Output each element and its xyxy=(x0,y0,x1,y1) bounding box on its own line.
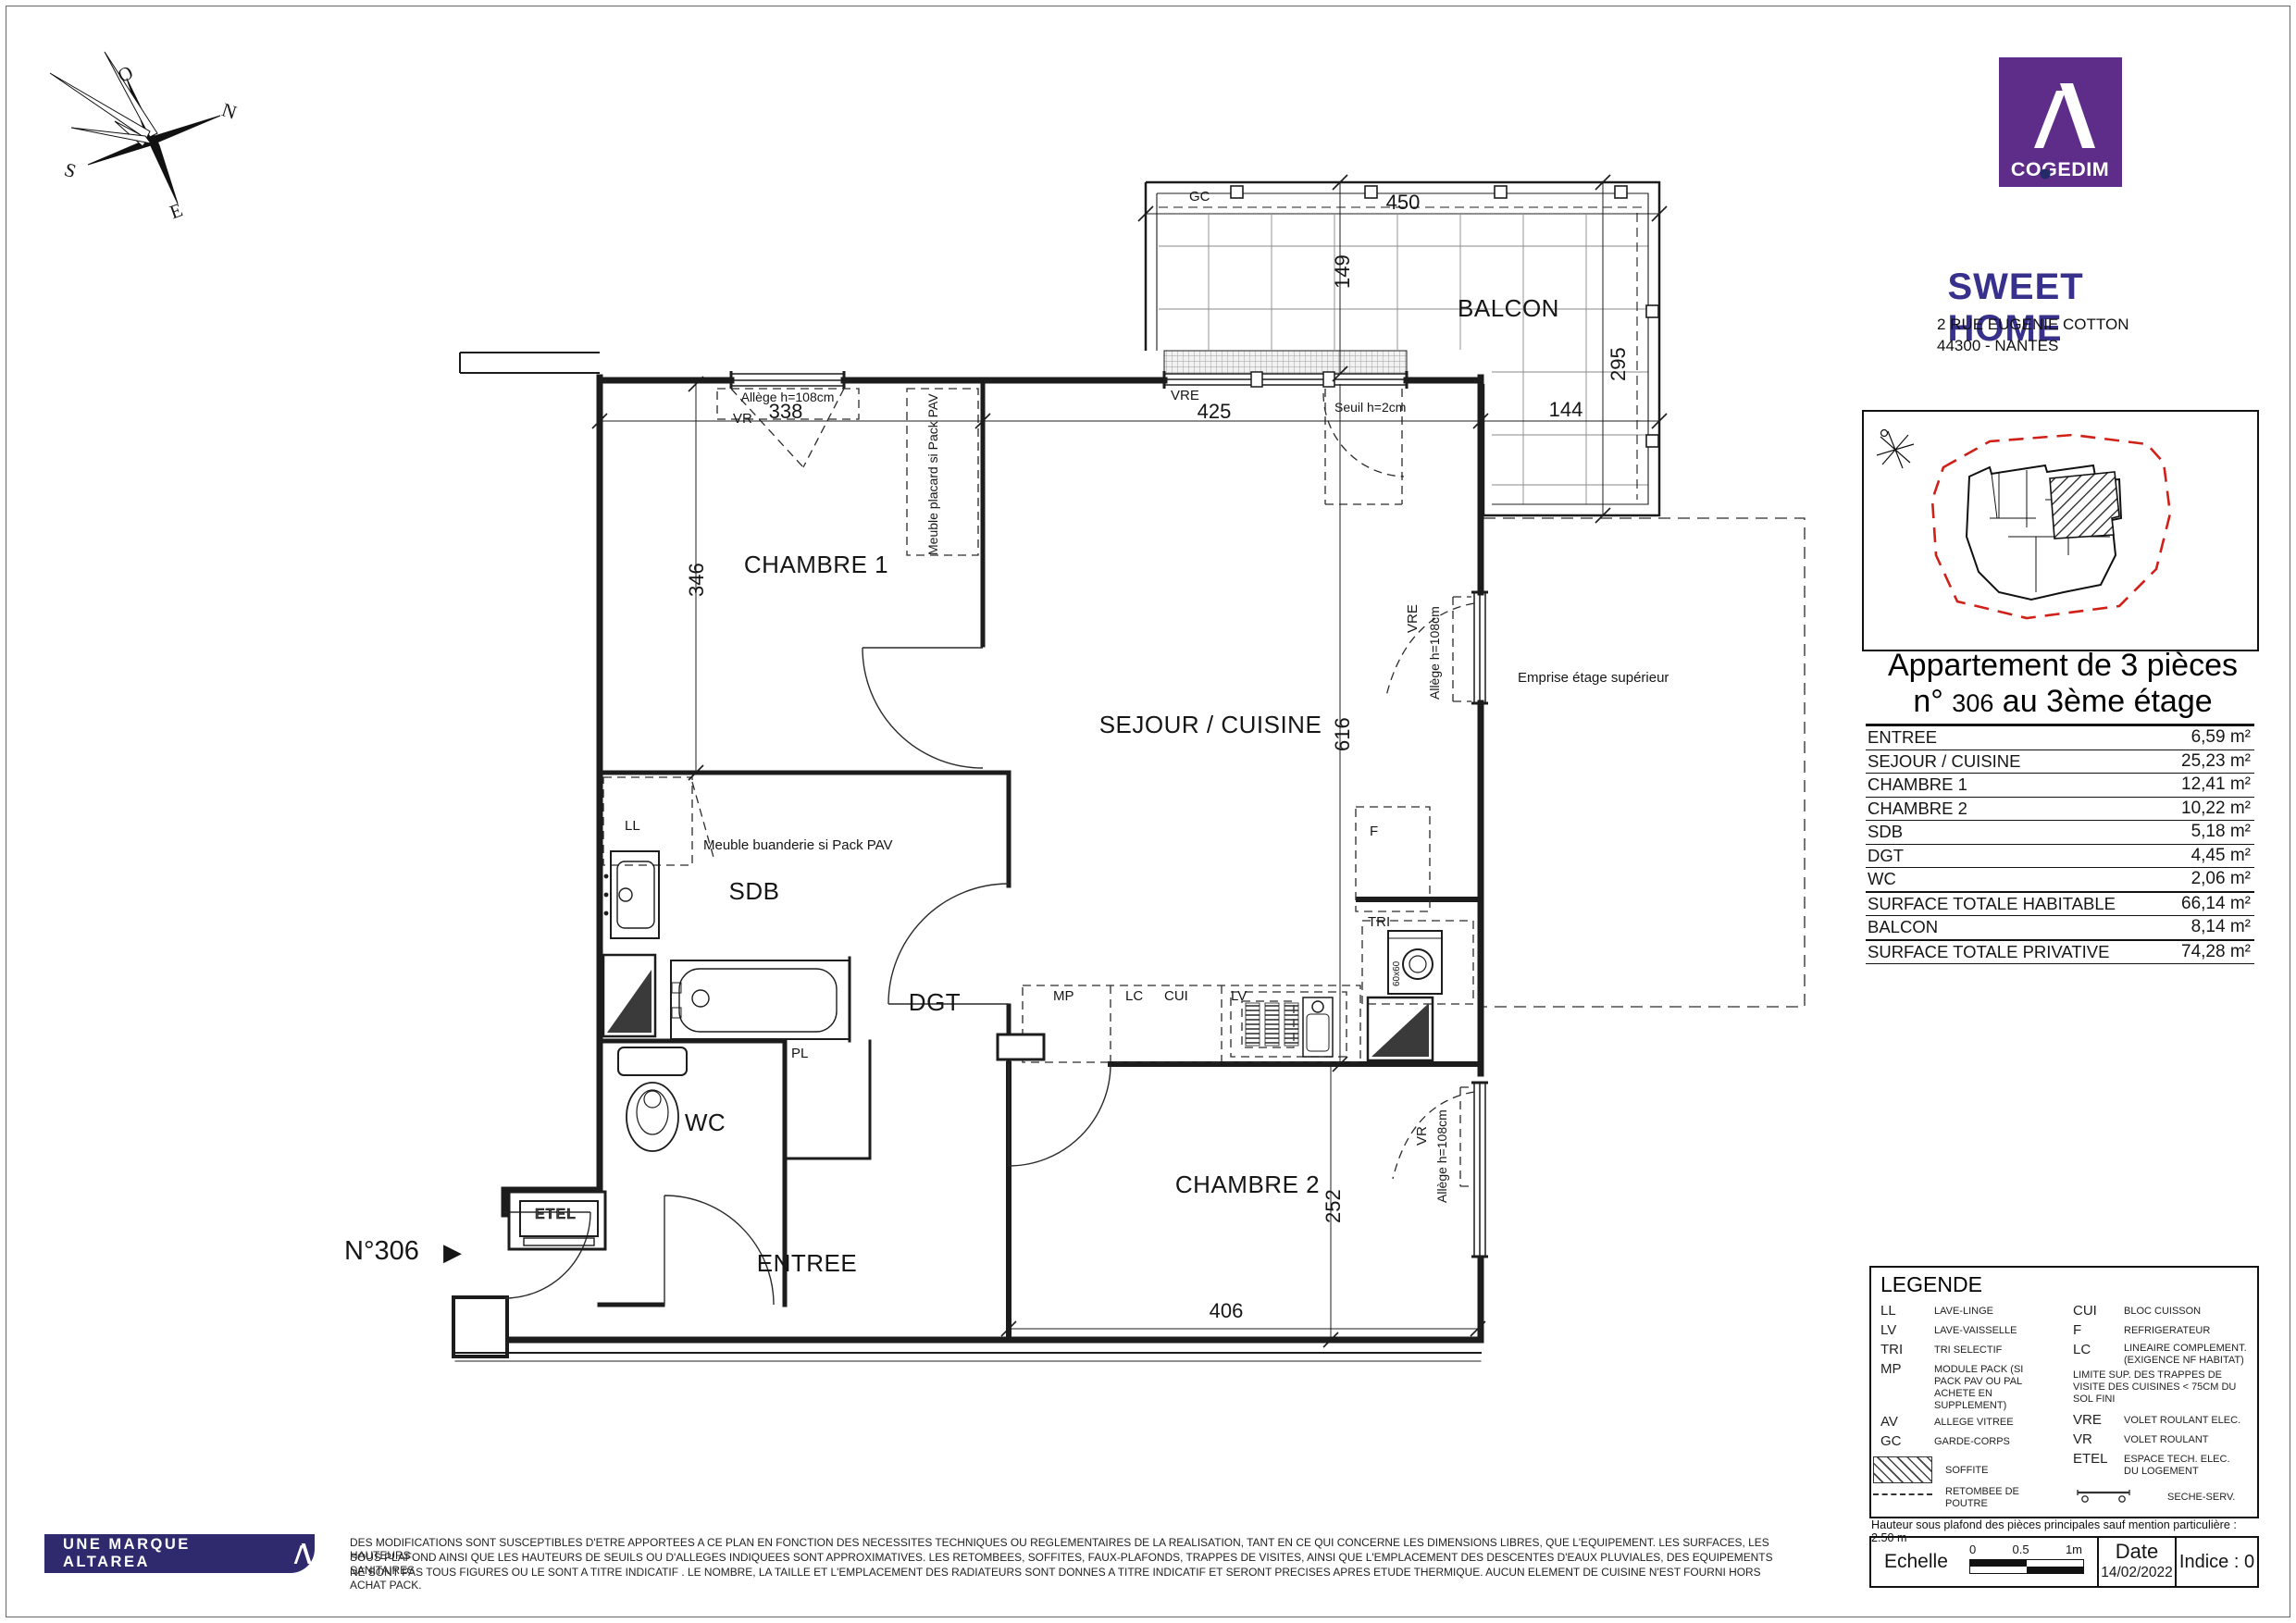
dim-346: 346 xyxy=(685,563,709,597)
brand-badge-text: UNE MARQUE ALTAREA xyxy=(63,1536,279,1571)
room-label-entree: ENTREE xyxy=(757,1249,857,1278)
legend-abbr: CUI xyxy=(2073,1303,2097,1319)
legend-seche-label: SECHE-SERV. xyxy=(2167,1492,2235,1504)
toilet xyxy=(618,1047,687,1151)
ann-pl: PL xyxy=(791,1046,808,1061)
legend-def: ESPACE TECH. ELEC. DU LOGEMENT xyxy=(2124,1454,2235,1478)
apartment-number: 306 xyxy=(1952,689,1993,717)
legend-def: LAVE-LINGE xyxy=(1934,1306,1993,1318)
legend-def: VOLET ROULANT ELEC. xyxy=(2124,1415,2240,1427)
room-label-dgt: DGT xyxy=(909,988,961,1017)
legend-def: GARDE-CORPS xyxy=(1934,1436,2010,1448)
scale-label: Echelle xyxy=(1884,1551,1948,1573)
ann-gc: GC xyxy=(1189,189,1210,204)
legend-abbr: LL xyxy=(1880,1303,1896,1319)
legend-abbr: MP xyxy=(1880,1361,1902,1377)
scale-05: 0.5 xyxy=(2013,1542,2029,1556)
dim-425: 425 xyxy=(1198,400,1232,424)
legend-title: LEGENDE xyxy=(1880,1272,1982,1297)
room-label-sdb: SDB xyxy=(729,877,780,906)
legend-abbr: VRE xyxy=(2073,1412,2102,1428)
legend-def: REFRIGERATEUR xyxy=(2124,1325,2210,1337)
table-row: DGT4,45 m² xyxy=(1866,845,2254,869)
legend-abbr: VR xyxy=(2073,1431,2092,1447)
windows xyxy=(731,351,1488,1257)
legend-def: TRI SELECTIF xyxy=(1934,1344,2002,1357)
table-row-total-habitable: SURFACE TOTALE HABITABLE66,14 m² xyxy=(1866,892,2254,917)
indice-cell: Indice : 0 xyxy=(2177,1538,2257,1586)
ann-vre-top: VRE xyxy=(1171,388,1199,403)
legend-def: LINEAIRE COMPLEMENT. (EXIGENCE NF HABITA… xyxy=(2124,1343,2249,1367)
table-row: CHAMBRE 210,22 m² xyxy=(1866,798,2254,822)
ann-allege-chambre2: Allège h=108cm xyxy=(1434,1109,1449,1203)
surface-table: ENTREE6,59 m² SEJOUR / CUISINE25,23 m² C… xyxy=(1866,724,2254,964)
cogedim-logo: COGEDIM xyxy=(1999,57,2122,187)
table-row-total-privative: SURFACE TOTALE PRIVATIVE74,28 m² xyxy=(1866,940,2254,965)
room-label-wc: WC xyxy=(685,1109,726,1137)
legend-def: ALLEGE VITREE xyxy=(1934,1417,2014,1429)
ann-vre-east: VRE xyxy=(1405,604,1421,633)
soffite-symbol xyxy=(1873,1456,1932,1483)
bathtub xyxy=(671,960,850,1039)
scale-tick-labels: 0 0.5 1m xyxy=(1969,1542,2082,1556)
legend-abbr: LC xyxy=(2073,1342,2091,1357)
altarea-lambda-icon xyxy=(292,1542,315,1566)
room-label-chambre1: CHAMBRE 1 xyxy=(744,551,888,579)
legend-abbr: AV xyxy=(1880,1414,1898,1430)
duct-shafts xyxy=(603,955,1433,1060)
apartment-title-line2: n° 306 au 3ème étage xyxy=(1869,684,2256,720)
scale-0: 0 xyxy=(1969,1542,1976,1556)
scale-bar xyxy=(1969,1559,2084,1574)
room-label-sejour: SEJOUR / CUISINE xyxy=(1099,711,1322,739)
table-row: SDB5,18 m² xyxy=(1866,821,2254,845)
date-label: Date xyxy=(2099,1540,2175,1564)
dim-450: 450 xyxy=(1386,191,1421,215)
retombee-symbol xyxy=(1873,1493,1932,1495)
dim-616: 616 xyxy=(1331,717,1355,751)
kitchen-sink xyxy=(1303,997,1333,1057)
legend-def: BLOC CUISSON xyxy=(2124,1306,2201,1318)
ann-lv: LV xyxy=(1231,988,1247,1004)
parapet-stub xyxy=(460,353,600,373)
table-row: WC2,06 m² xyxy=(1866,868,2254,892)
apartment-title: Appartement de 3 pièces n° 306 au 3ème é… xyxy=(1869,648,2256,720)
dim-252: 252 xyxy=(1322,1189,1346,1223)
room-label-balcon: BALCON xyxy=(1458,294,1559,323)
ann-vr-chambre1: VR xyxy=(733,411,752,427)
table-row: ENTREE6,59 m² xyxy=(1866,726,2254,750)
ann-seuil: Seuil h=2cm xyxy=(1334,400,1406,415)
apartment-title-line1: Appartement de 3 pièces xyxy=(1869,648,2256,684)
compass-rose-icon xyxy=(50,52,220,204)
address-line1: 2 RUE EUGENIE COTTON xyxy=(1937,315,2129,336)
dimension-lines xyxy=(592,175,1667,1347)
legend-abbr: F xyxy=(2073,1322,2081,1338)
ann-lc: LC xyxy=(1125,988,1143,1004)
legend-abbr: ETEL xyxy=(2073,1451,2108,1467)
unit-number-label: N°306 xyxy=(344,1236,419,1267)
legend-note: LIMITE SUP. DES TRAPPES DE VISITE DES CU… xyxy=(2073,1369,2244,1406)
room-label-chambre2: CHAMBRE 2 xyxy=(1175,1171,1320,1199)
plan-sheet: BALCON CHAMBRE 1 SEJOUR / CUISINE SDB DG… xyxy=(0,0,2296,1623)
legend-abbr: GC xyxy=(1880,1433,1902,1449)
ann-tri: TRI xyxy=(1368,914,1390,930)
legend-retombee-label: RETOMBEE DE POUTRE xyxy=(1945,1486,2033,1510)
legend-soffite-label: SOFFITE xyxy=(1945,1465,1988,1477)
dim-149: 149 xyxy=(1331,254,1355,289)
ann-allege-east: Allège h=108cm xyxy=(1427,606,1442,700)
disclaimer-line3: NE SONT PAS TOUS FIGURES OU LE SONT A TI… xyxy=(350,1566,1786,1592)
residence-address: 2 RUE EUGENIE COTTON 44300 - NANTES xyxy=(1937,315,2129,357)
key-plan-box xyxy=(1862,410,2259,651)
dim-144: 144 xyxy=(1549,398,1583,422)
ann-etel: ETEL xyxy=(535,1207,577,1223)
dim-406: 406 xyxy=(1210,1299,1244,1323)
seche-serv-symbol xyxy=(2076,1488,2131,1505)
ann-ll: LL xyxy=(625,818,640,834)
scale-cell: Echelle 0 0.5 1m xyxy=(1871,1538,2099,1586)
address-line2: 44300 - NANTES xyxy=(1937,336,2129,357)
altarea-brand-badge: UNE MARQUE ALTAREA xyxy=(44,1534,315,1573)
legend-def: MODULE PACK (SI PACK PAV OU PAL ACHETE E… xyxy=(1934,1364,2043,1412)
table-row: CHAMBRE 112,41 m² xyxy=(1866,774,2254,798)
towel-dryer-stripes xyxy=(1246,1003,1298,1046)
table-row: BALCON8,14 m² xyxy=(1866,916,2254,940)
dim-295: 295 xyxy=(1607,347,1631,381)
date-cell: Date 14/02/2022 xyxy=(2099,1538,2177,1586)
interior-walls xyxy=(600,380,1481,1340)
ann-mp: MP xyxy=(1053,988,1074,1004)
ann-meuble-placard: Meuble placard si Pack PAV xyxy=(925,393,940,555)
ann-oven-size: 60x60 xyxy=(1392,961,1402,986)
ann-meuble-buanderie: Meuble buanderie si Pack PAV xyxy=(703,837,893,853)
door-swings xyxy=(504,648,1111,1305)
scale-date-table: Echelle 0 0.5 1m Date 14/02/2022 Indice … xyxy=(1869,1536,2259,1588)
washbasin xyxy=(604,851,659,938)
logo-wordmark: COGEDIM xyxy=(2011,158,2109,180)
legend-abbr: TRI xyxy=(1880,1342,1903,1357)
scale-1m: 1m xyxy=(2066,1542,2082,1556)
ann-emprise: Emprise étage supérieur xyxy=(1518,670,1669,686)
unit-arrow-icon: ▶ xyxy=(443,1238,462,1267)
ann-f: F xyxy=(1370,824,1378,839)
legend-abbr: LV xyxy=(1880,1322,1896,1338)
legend-def: VOLET ROULANT xyxy=(2124,1434,2209,1446)
date-value: 14/02/2022 xyxy=(2099,1565,2175,1581)
table-row: SEJOUR / CUISINE25,23 m² xyxy=(1866,750,2254,774)
legend-def: LAVE-VAISSELLE xyxy=(1934,1325,2017,1337)
ann-vr-chambre2: VR xyxy=(1414,1126,1430,1146)
ann-allege-chambre1: Allège h=108cm xyxy=(741,390,835,404)
ann-cui: CUI xyxy=(1164,988,1188,1004)
